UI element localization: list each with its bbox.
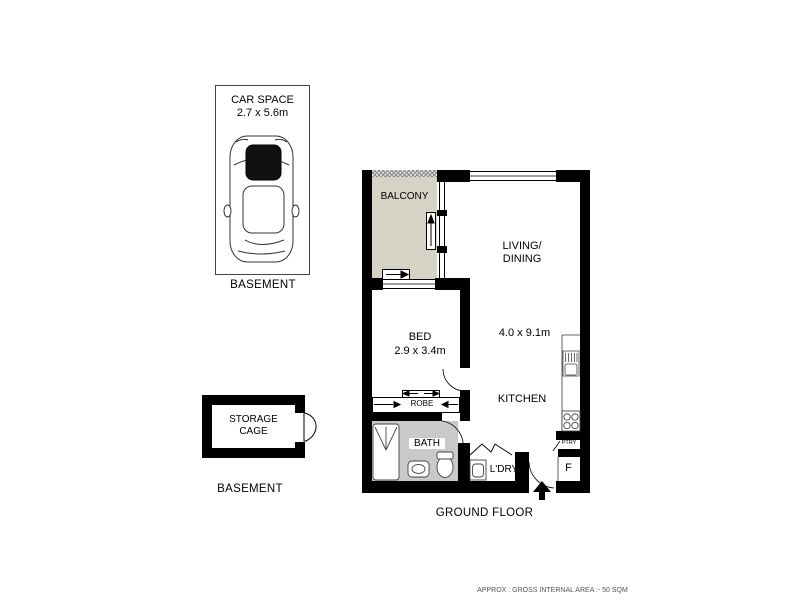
wall-right <box>580 170 590 493</box>
wall-top-mid <box>437 170 470 182</box>
washing-machine-icon <box>470 460 486 480</box>
living-label-line2: DINING <box>482 253 562 265</box>
storage-cage-door-gap <box>295 413 305 442</box>
car-space-floor-caption: BASEMENT <box>208 279 318 292</box>
laundry-bifold-doors <box>470 444 512 455</box>
wall-bed-top-left <box>362 278 383 290</box>
kitchen-sink-icon <box>563 351 579 376</box>
kitchen-counter-line <box>562 335 580 431</box>
floorplan-page: CAR SPACE 2.7 x 5.6m BASEMENT STORAGE CA… <box>0 0 800 600</box>
entry-arrow-icon <box>533 481 551 500</box>
balcony-glass-pane-2 <box>439 216 445 246</box>
wall-left <box>362 170 372 493</box>
plan-linework <box>0 0 800 600</box>
wall-bath-right <box>458 443 470 481</box>
pantry-bar-bottom <box>558 449 580 457</box>
living-top-window <box>470 171 556 181</box>
storage-cage-label-1: STORAGE <box>212 414 295 425</box>
balcony-slider-panel <box>426 212 436 250</box>
bed-balcony-window <box>383 279 435 289</box>
footer-note: APPROX : GROSS INTERNAL AREA :- 50 SQM <box>430 587 675 595</box>
wall-top-right-corner <box>556 170 590 182</box>
living-dims-label: 4.0 x 9.1m <box>482 327 567 339</box>
balcony-railing <box>372 170 437 177</box>
laundry-label: L'DRY <box>486 464 522 475</box>
storage-door-leaf <box>304 413 316 441</box>
storage-floor-caption: BASEMENT <box>195 483 305 496</box>
wall-robe-bottom <box>362 412 442 421</box>
pantry-label: PTRY <box>558 440 580 446</box>
balcony-label: BALCONY <box>372 191 437 202</box>
living-label-line1: LIVING/ <box>482 240 562 252</box>
bed-slider-panel <box>382 269 410 280</box>
wall-bottom-left <box>362 481 529 493</box>
storage-cage-label-2: CAGE <box>212 426 295 437</box>
kitchen-label: KITCHEN <box>482 393 562 405</box>
wall-bed-living-lower <box>460 390 470 421</box>
balcony-divider-block-2 <box>437 246 447 253</box>
robe-label: ROBE <box>403 400 441 409</box>
fridge-label: F <box>557 462 580 474</box>
wall-bottom-right <box>556 481 590 493</box>
pantry-bar-top <box>556 431 580 440</box>
balcony-glass-pane-3 <box>439 253 445 278</box>
bed-door-arc <box>443 369 465 391</box>
entry-door-arc <box>529 462 554 488</box>
car-space-title: CAR SPACE <box>215 94 310 106</box>
wall-bed-living-upper <box>460 278 470 368</box>
cooktop-icon <box>562 411 580 431</box>
bath-label: BATH <box>409 438 445 449</box>
bed-dims-label: 2.9 x 3.4m <box>380 345 460 357</box>
ground-floor-caption: GROUND FLOOR <box>417 507 552 520</box>
robe-slider-notch <box>402 390 440 398</box>
balcony-glass-pane-1 <box>439 182 445 210</box>
bath-area <box>372 421 458 481</box>
bed-label: BED <box>380 331 460 343</box>
car-space-dims: 2.7 x 5.6m <box>215 107 310 119</box>
